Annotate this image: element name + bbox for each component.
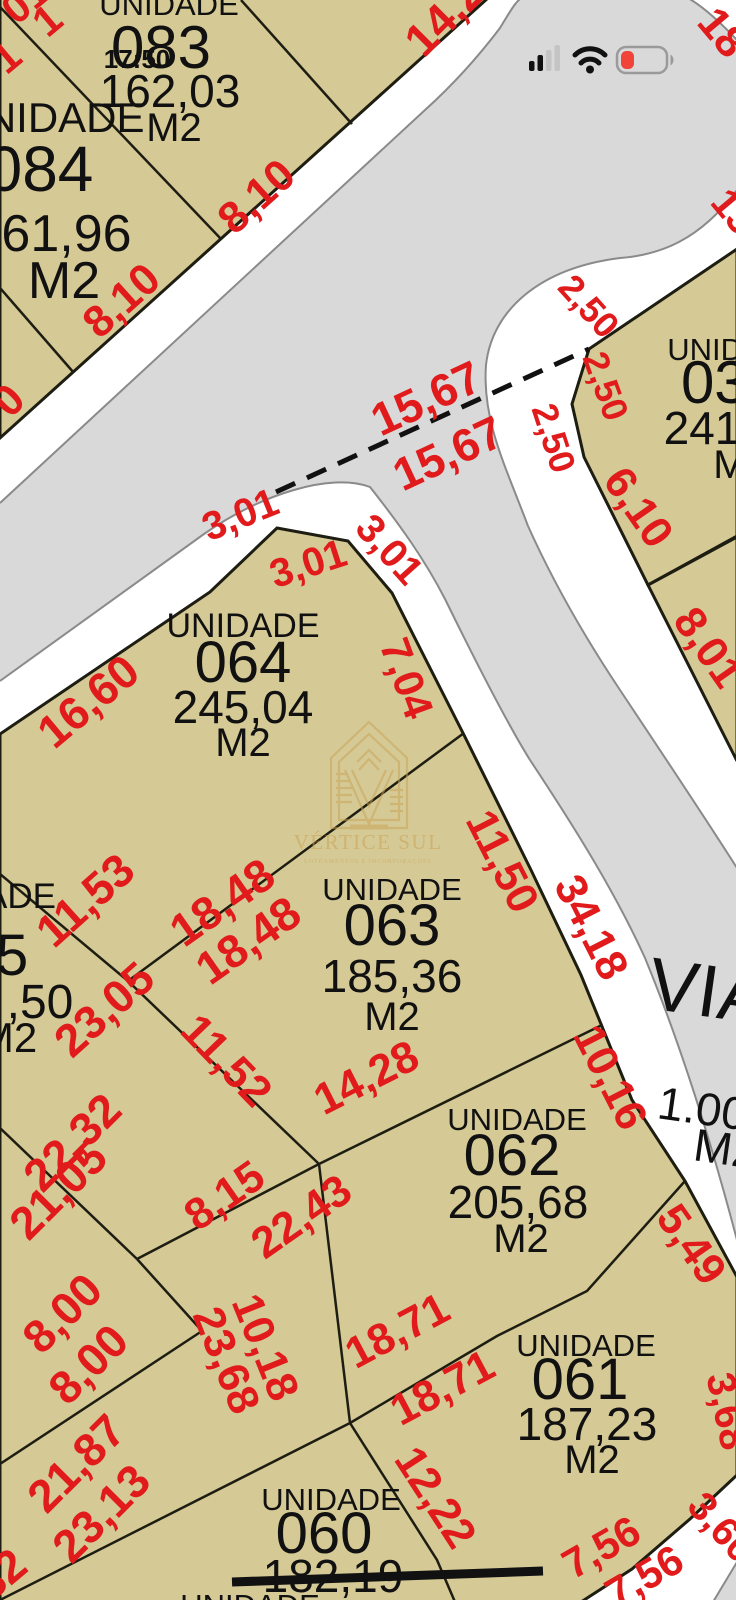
svg-text:17:50: 17:50 xyxy=(104,44,171,74)
svg-text:VÉRTICE SUL: VÉRTICE SUL xyxy=(294,830,443,854)
svg-text:M2: M2 xyxy=(364,995,420,1039)
svg-text:084: 084 xyxy=(0,133,93,205)
svg-text:UNIDADE: UNIDADE xyxy=(180,1588,320,1600)
svg-text:M2: M2 xyxy=(713,443,736,487)
svg-text:M2: M2 xyxy=(691,1118,736,1178)
svg-text:M2: M2 xyxy=(0,1014,37,1061)
svg-text:M2: M2 xyxy=(564,1438,620,1482)
svg-text:063: 063 xyxy=(344,893,441,958)
svg-text:M2: M2 xyxy=(215,721,271,765)
svg-text:M2: M2 xyxy=(493,1217,549,1261)
svg-text:M2: M2 xyxy=(146,106,202,150)
svg-text:LOTEAMENTOS E INCORPORAÇÕES: LOTEAMENTOS E INCORPORAÇÕES xyxy=(304,857,432,865)
